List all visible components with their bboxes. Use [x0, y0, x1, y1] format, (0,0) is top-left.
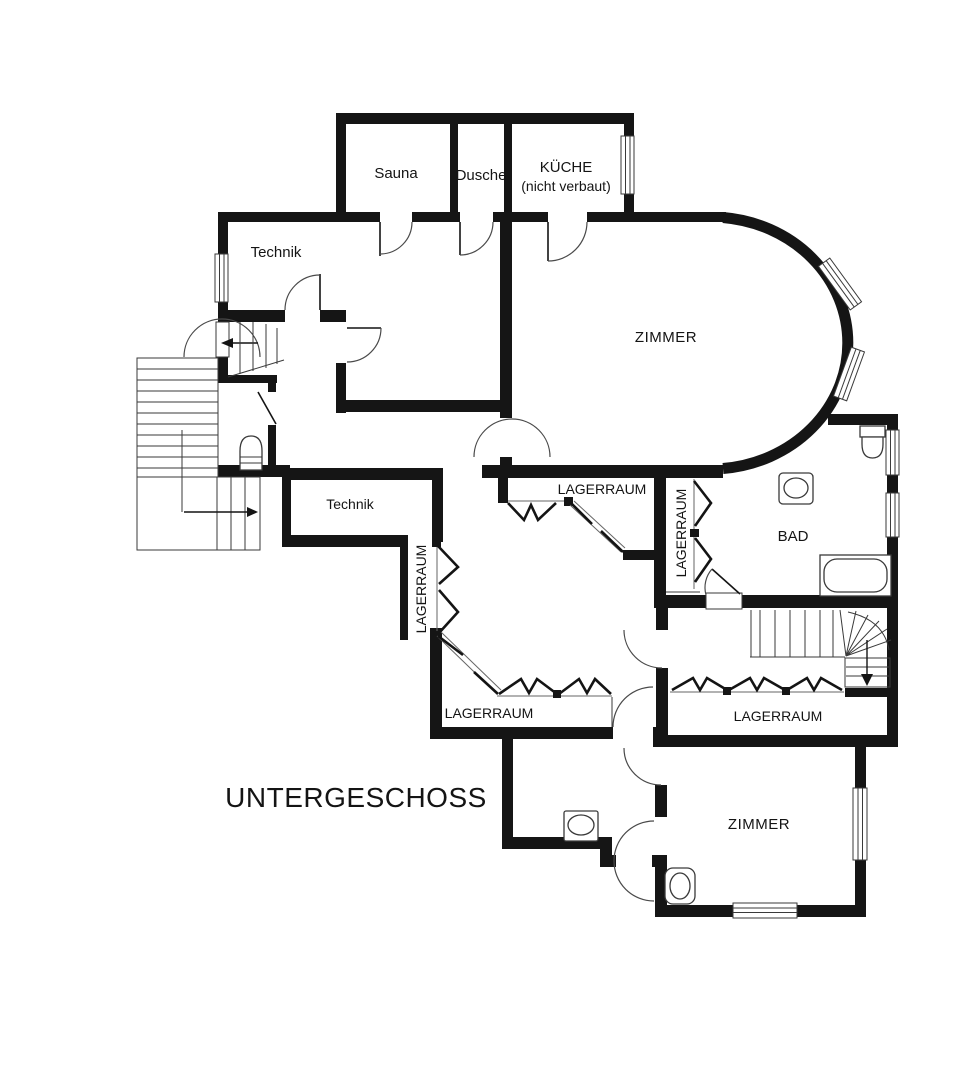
room-label-technik-lower: Technik [326, 496, 374, 512]
folding-door-left-storage [432, 539, 501, 694]
sink-bad [779, 473, 813, 504]
door-middle-to-zimmer [624, 748, 661, 785]
door-stair-hall [624, 630, 662, 668]
folding-door-bottom-center-storage [497, 679, 612, 698]
room-label-lagerraum-bottom-right: LAGERRAUM [734, 708, 823, 724]
sink-middle-room [564, 811, 598, 841]
door-wc [258, 392, 276, 424]
door-dusche [460, 222, 493, 255]
bathtub-bad [820, 555, 891, 596]
door-entry [184, 319, 260, 357]
door-technik-upper [285, 274, 320, 310]
door-zimmer-main [474, 419, 550, 457]
door-middle-room [613, 687, 653, 727]
room-label-sauna: Sauna [374, 165, 418, 182]
room-label-bad: BAD [778, 528, 809, 545]
sink-zimmer-lower [665, 868, 695, 904]
window-technik-west [215, 254, 228, 302]
door-kueche [548, 222, 587, 261]
floor-plan-page: Sauna Dusche KÜCHE (nicht verbaut) Techn… [0, 0, 969, 1080]
window-bad-east-upper [886, 430, 899, 475]
floor-plan-drawing: Sauna Dusche KÜCHE (nicht verbaut) Techn… [0, 0, 969, 1080]
room-label-zimmer-main: ZIMMER [635, 329, 697, 346]
room-label-dusche: Dusche [456, 167, 507, 184]
room-label-lagerraum-left: LAGERRAUM [413, 545, 429, 634]
door-sauna [380, 222, 412, 256]
door-corridor-room [347, 328, 381, 362]
window-bad-east-lower [886, 493, 899, 537]
floor-title: UNTERGESCHOSS [225, 782, 487, 813]
folding-door-bad-storage [690, 479, 711, 589]
door-bad [705, 569, 742, 609]
room-label-technik-upper: Technik [251, 244, 302, 261]
room-label-kueche-note: (nicht verbaut) [521, 178, 610, 194]
toilet-wc [240, 436, 262, 470]
room-label-zimmer-lower: ZIMMER [728, 816, 790, 833]
window-kueche-east [621, 136, 634, 194]
room-label-lagerraum-bottom-center: LAGERRAUM [445, 705, 534, 721]
interior-winder-stairs [750, 610, 891, 687]
toilet-bad [860, 426, 885, 458]
door-garden-half [614, 821, 654, 901]
folding-door-bottom-right-storage [670, 678, 844, 695]
entry-winder-stairs [228, 322, 284, 377]
window-zimmer-lower-south [733, 903, 797, 918]
window-zimmer-lower-east [853, 788, 867, 860]
room-label-lagerraum-bad: LAGERRAUM [673, 489, 689, 578]
closet-fronts-layer [432, 479, 844, 698]
room-label-lagerraum-hall: LAGERRAUM [558, 481, 647, 497]
folding-door-hall-storage [508, 497, 625, 552]
room-label-kueche: KÜCHE [540, 158, 593, 176]
